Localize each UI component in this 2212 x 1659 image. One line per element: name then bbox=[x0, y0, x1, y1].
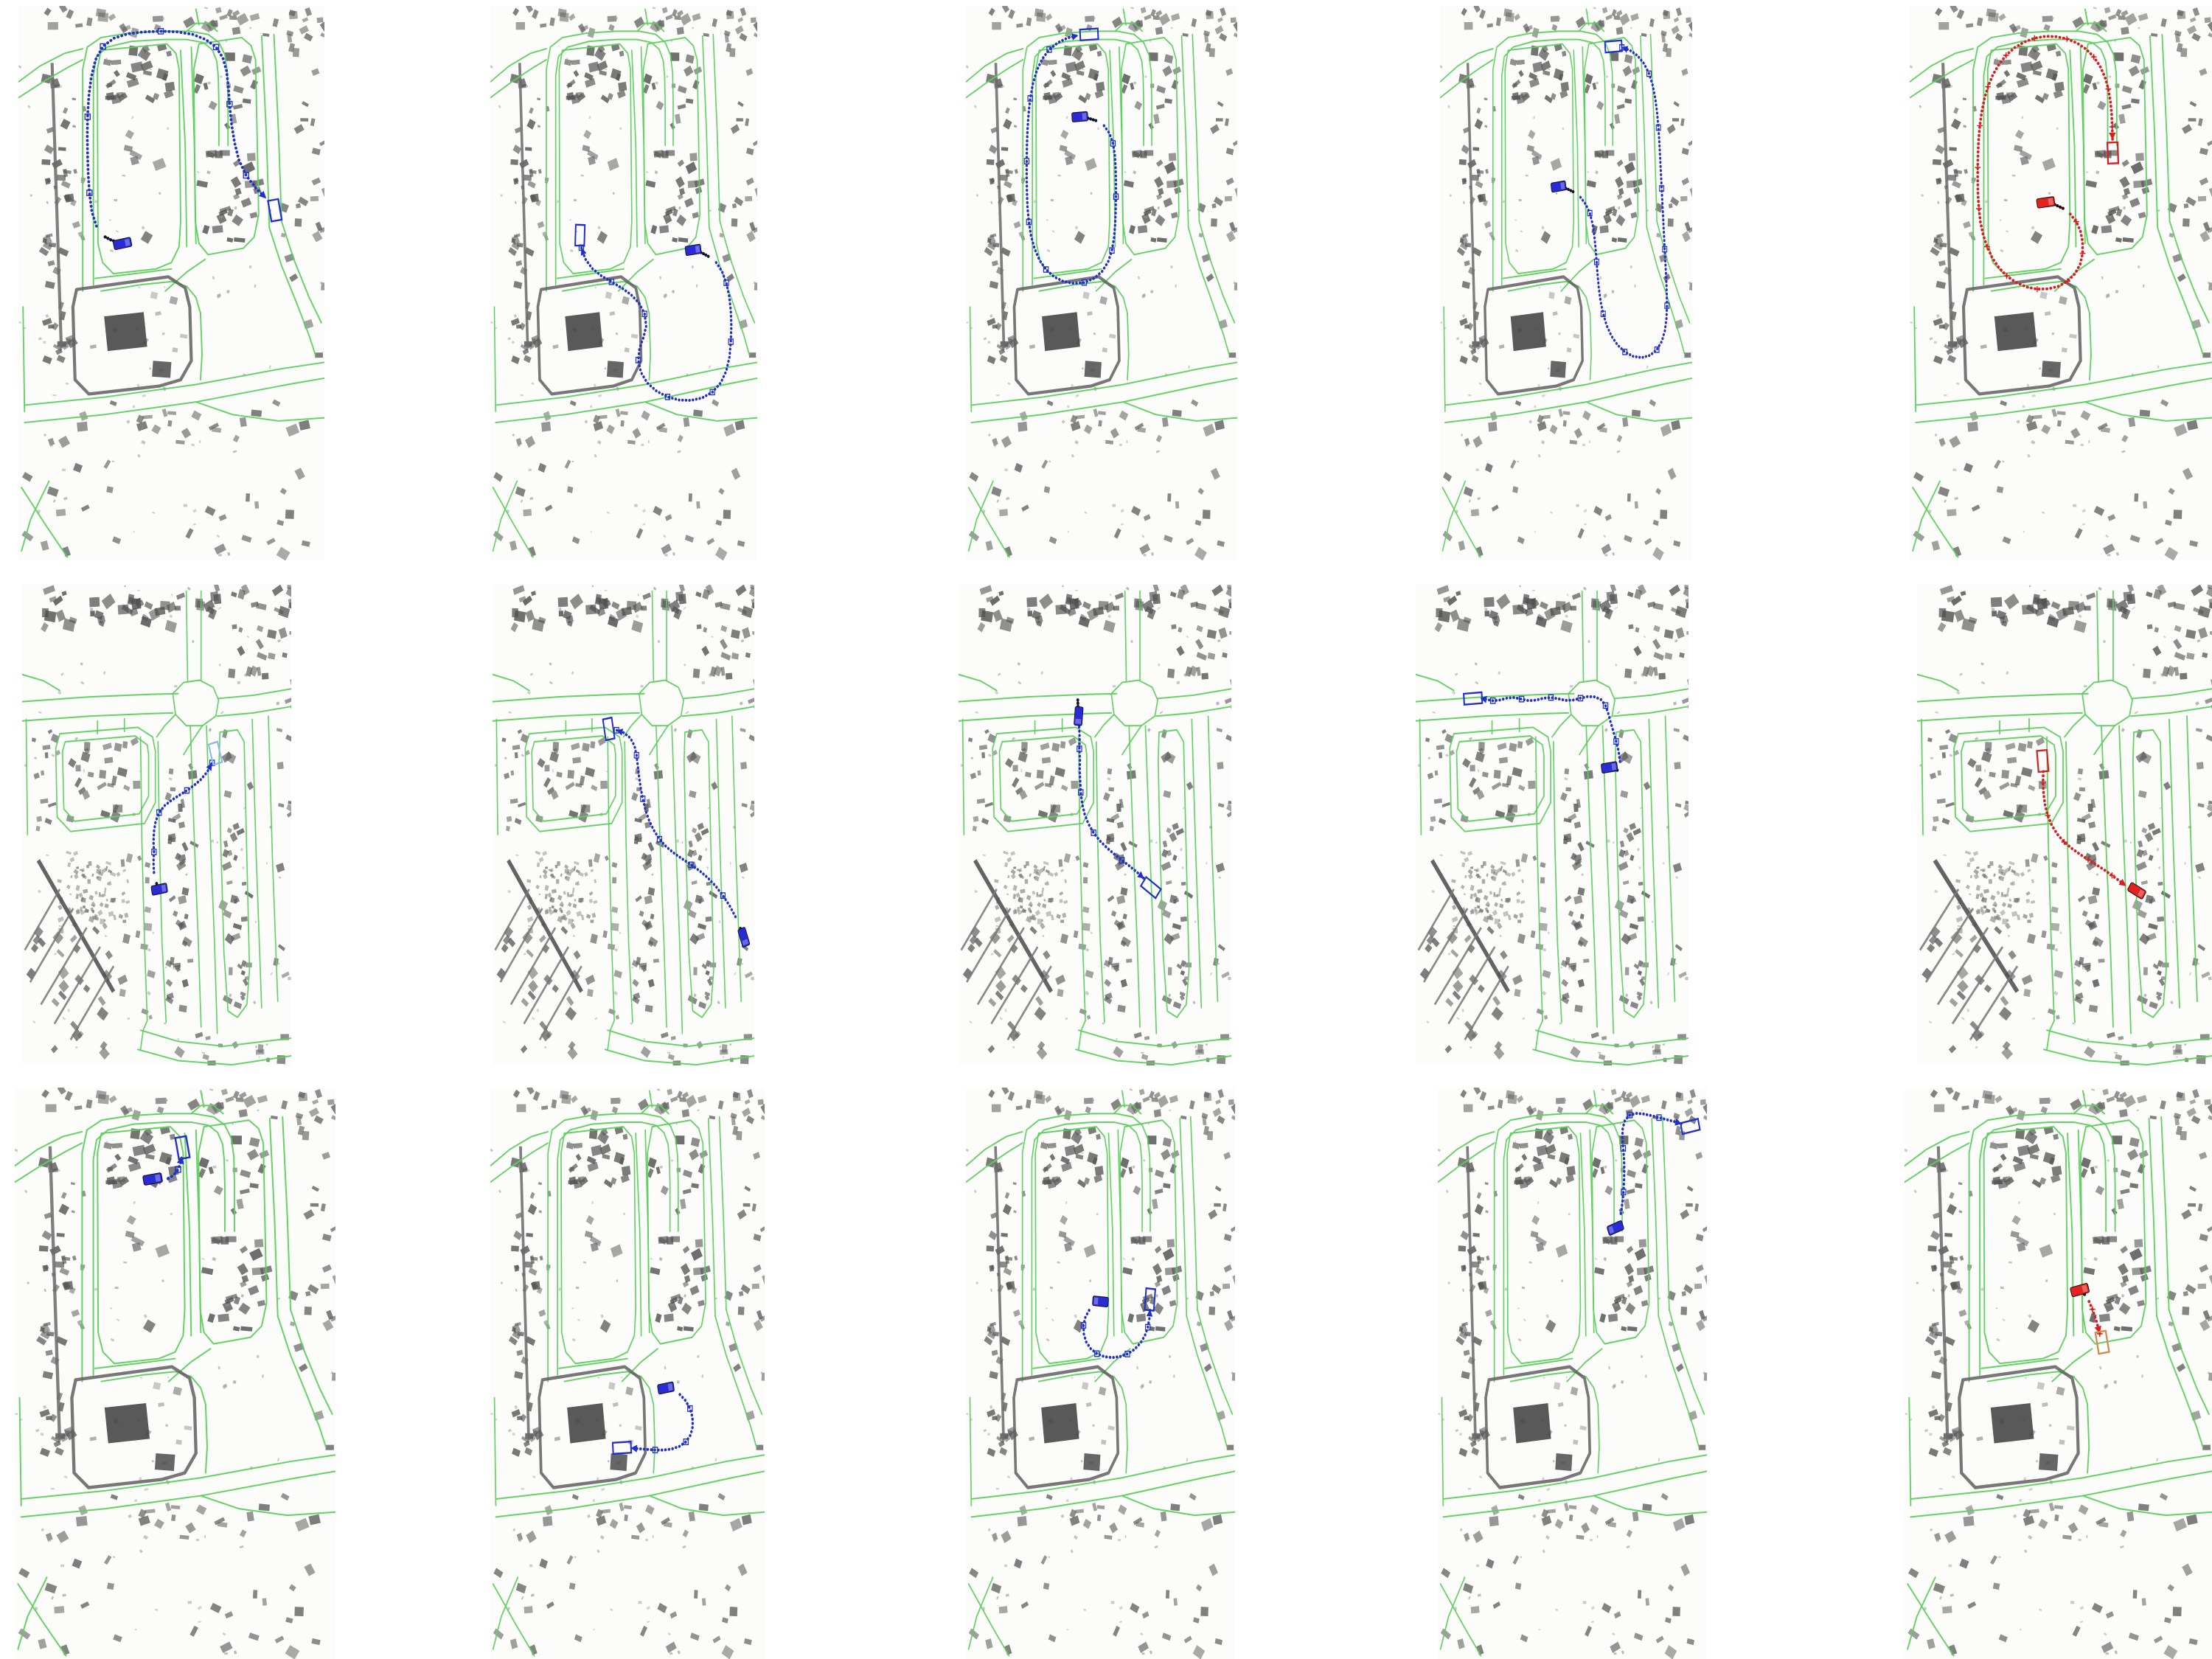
trajectory-map-panel-r2c4 bbox=[1416, 585, 1688, 1065]
map-panel-svg bbox=[966, 6, 1237, 560]
aerial-map-layer bbox=[1905, 1088, 2212, 1659]
map-panel-svg bbox=[966, 1088, 1235, 1659]
aerial-map-layer bbox=[18, 6, 324, 560]
map-panel-svg bbox=[490, 6, 757, 560]
map-panel-svg bbox=[493, 585, 754, 1065]
vehicle-marker bbox=[1092, 1296, 1108, 1307]
map-panel-svg bbox=[959, 585, 1231, 1065]
map-panel-svg bbox=[1905, 1088, 2212, 1659]
trajectory-map-panel-r2c1 bbox=[22, 585, 291, 1065]
aerial-map-layer bbox=[1910, 6, 2212, 560]
aerial-map-layer bbox=[1438, 1088, 1707, 1659]
map-panel-svg bbox=[1416, 585, 1688, 1065]
trajectory-map-panel-r1c2 bbox=[490, 6, 757, 560]
map-panel-svg bbox=[15, 1088, 335, 1659]
trajectory-map-panel-r3c5 bbox=[1905, 1088, 2212, 1659]
trajectory-map-panel-r3c4 bbox=[1438, 1088, 1707, 1659]
trajectory-map-panel-r2c2 bbox=[493, 585, 754, 1065]
trajectory-map-panel-r3c3 bbox=[966, 1088, 1235, 1659]
aerial-map-layer bbox=[1416, 585, 1688, 1065]
vehicle-marker bbox=[685, 244, 701, 256]
trajectory-map-panel-r3c1 bbox=[15, 1088, 335, 1659]
aerial-map-layer bbox=[490, 1088, 765, 1659]
aerial-map-layer bbox=[490, 6, 757, 560]
map-panel-svg bbox=[1440, 6, 1692, 560]
map-panel-svg bbox=[490, 1088, 765, 1659]
trajectory-map-panel-r2c3 bbox=[959, 585, 1231, 1065]
vehicle-marker bbox=[1072, 111, 1088, 122]
aerial-map-layer bbox=[966, 6, 1237, 560]
aerial-map-layer bbox=[966, 1088, 1235, 1659]
vehicle-marker bbox=[1551, 181, 1566, 192]
aerial-map-layer bbox=[1917, 585, 2212, 1065]
trajectory-map-panel-r1c5 bbox=[1910, 6, 2212, 560]
map-panel-svg bbox=[22, 585, 291, 1065]
trajectory-map-panel-r3c2 bbox=[490, 1088, 765, 1659]
trajectory-map-panel-r1c3 bbox=[966, 6, 1237, 560]
trajectory-map-panel-r1c4 bbox=[1440, 6, 1692, 560]
trajectory-map-panel-r1c1 bbox=[18, 6, 324, 560]
aerial-map-layer bbox=[959, 585, 1231, 1065]
trajectory-figure-page bbox=[0, 0, 2212, 1659]
map-panel-svg bbox=[1917, 585, 2212, 1065]
aerial-map-layer bbox=[493, 585, 754, 1065]
map-panel-svg bbox=[1910, 6, 2212, 560]
aerial-map-layer bbox=[22, 585, 291, 1065]
vehicle-marker bbox=[1074, 706, 1084, 726]
map-panel-svg bbox=[1438, 1088, 1707, 1659]
map-panel-svg bbox=[18, 6, 324, 560]
vehicle-marker bbox=[2037, 197, 2055, 209]
trajectory-map-panel-r2c5 bbox=[1917, 585, 2212, 1065]
vehicle-marker bbox=[1601, 762, 1618, 773]
